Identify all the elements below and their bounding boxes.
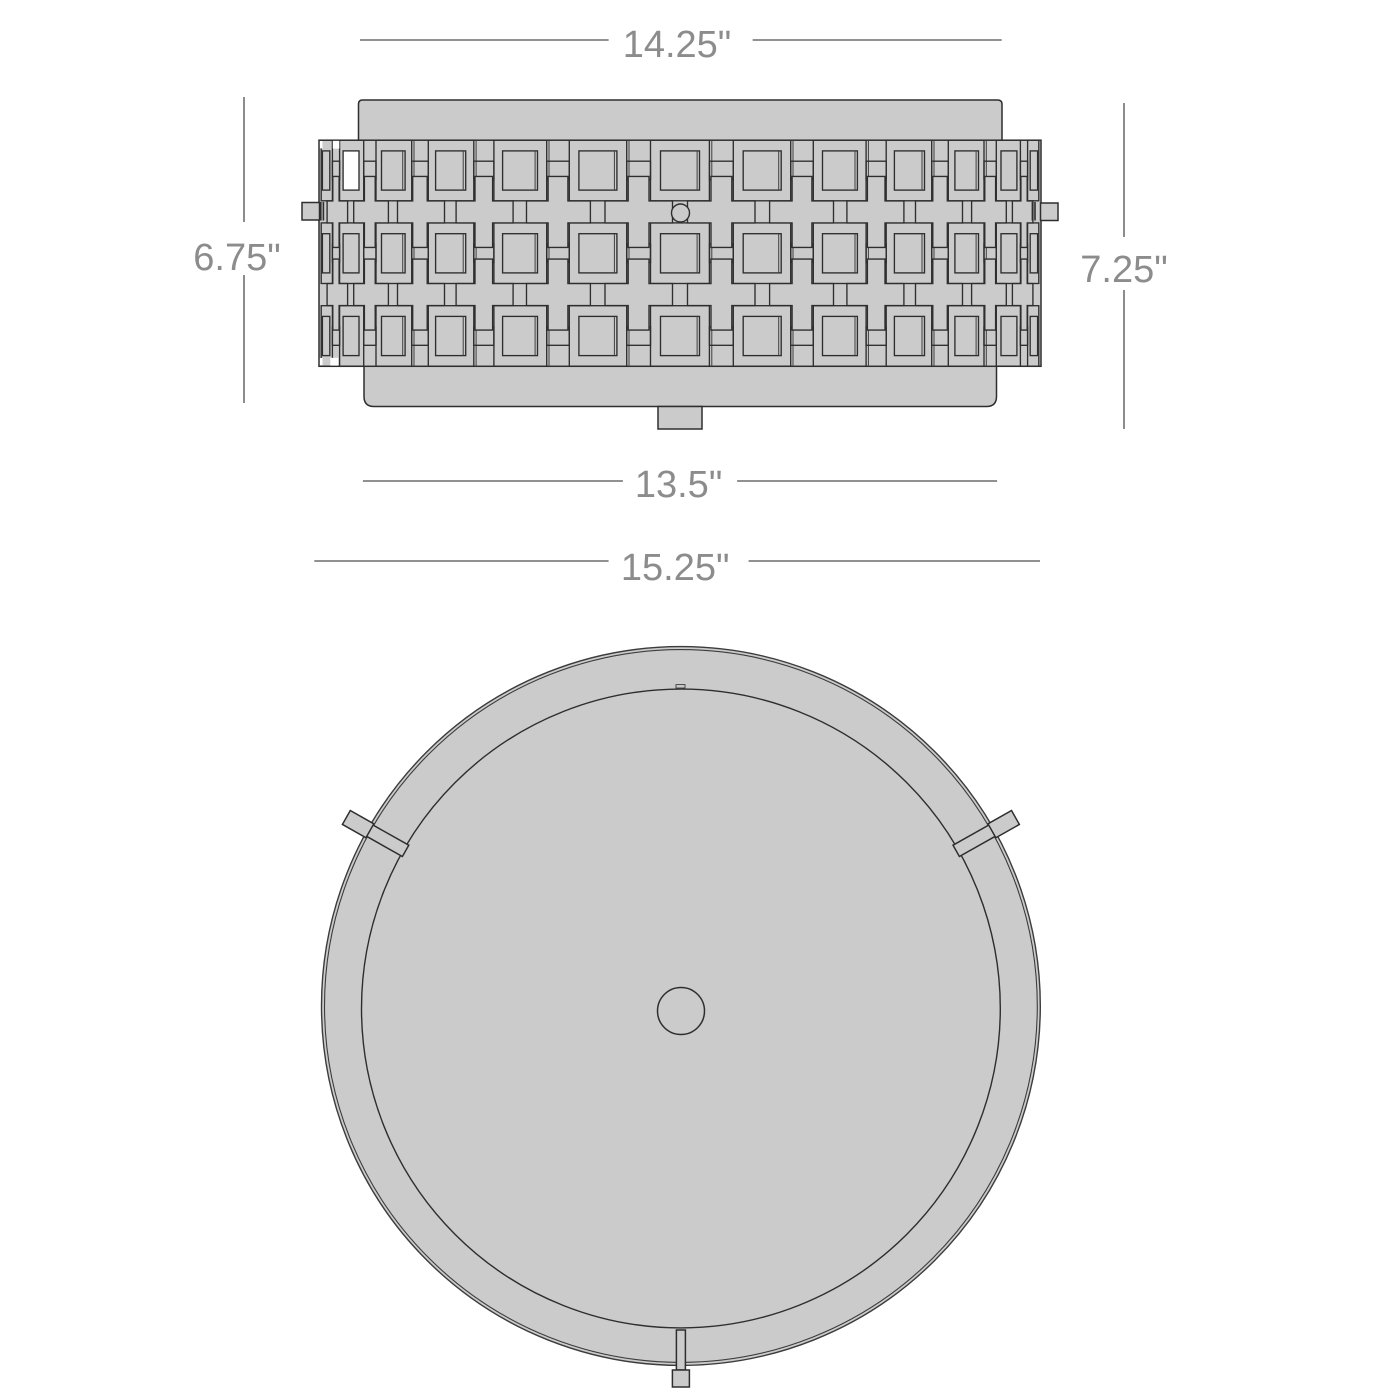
svg-text:14.25": 14.25" <box>623 24 732 66</box>
svg-text:7.25": 7.25" <box>1080 249 1167 291</box>
svg-text:6.75": 6.75" <box>193 237 280 279</box>
svg-text:13.5": 13.5" <box>635 464 722 506</box>
svg-text:15.25": 15.25" <box>621 547 730 589</box>
